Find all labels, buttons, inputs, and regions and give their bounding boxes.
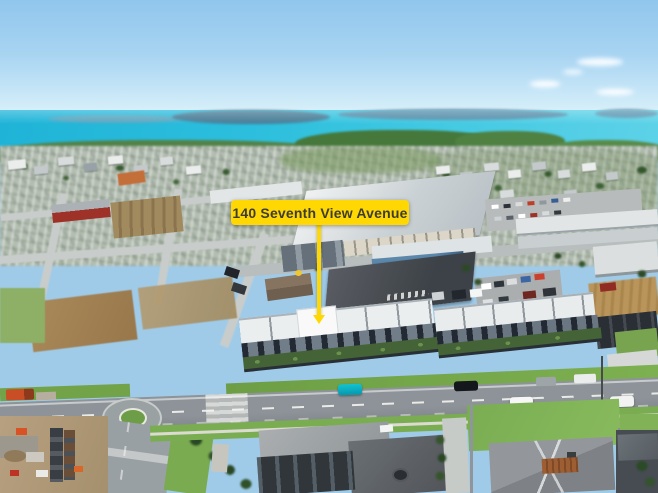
parked-car [563,198,570,202]
orange-machine [6,389,34,401]
distant-house [186,165,202,175]
garden-wall [211,443,229,472]
green-field [0,288,45,343]
construction-building [110,195,183,238]
parked-car [491,205,498,209]
parked-car [452,289,467,299]
horizon-haze [0,110,658,124]
containers [50,428,63,482]
distant-house [558,169,571,178]
charcoal-house-walls [257,451,355,493]
dirt-patch [4,450,26,462]
townhouse-row-subject [238,290,444,381]
parked-car [503,204,510,208]
distant-house [532,161,547,170]
aerial-photo: 140 Seventh View Avenue [0,0,658,493]
orange-equipment [16,428,27,435]
callout-leader-tip [313,315,325,324]
parked-car [539,200,546,204]
parked-car [515,202,522,206]
parked-car [536,377,556,387]
timber-deck [542,457,579,474]
teal-car [338,384,362,396]
right-trees [612,450,658,493]
black-car [454,381,478,392]
distant-house [160,156,174,165]
canopy [26,452,44,462]
parked-car [542,211,549,215]
construction-yard [0,416,108,493]
parked-car [554,210,561,214]
distant-house [34,165,49,174]
parked-car [527,201,534,205]
parked-car [494,216,501,220]
white-vehicle [36,470,48,477]
hedge [430,430,454,493]
vacant-dirt-lot [138,276,237,329]
parked-van [574,374,596,384]
fence [470,404,473,493]
distant-house [84,162,98,171]
parked-car [551,198,558,202]
distant-house [508,169,522,178]
distant-house [484,162,500,172]
yellow-object [295,270,302,276]
water-tank [392,468,409,482]
distant-house [8,159,27,170]
distant-house [436,165,451,174]
distant-house [606,171,619,180]
parked-car [470,288,483,297]
photo-scene [0,0,658,493]
orange-equipment [74,466,83,472]
clouds [515,48,658,103]
red-equipment [10,470,19,476]
callout-label: 140 Seventh View Avenue [231,200,409,225]
parked-car [506,216,513,220]
callout-label-text: 140 Seventh View Avenue [232,205,407,221]
distant-house [582,162,597,171]
callout-leader-line [317,223,321,317]
trailer [36,392,56,401]
parked-car-red [600,282,617,292]
white-rooftop-object [380,425,393,433]
distant-house [108,155,124,165]
distant-house [58,156,75,166]
containers [64,430,75,480]
